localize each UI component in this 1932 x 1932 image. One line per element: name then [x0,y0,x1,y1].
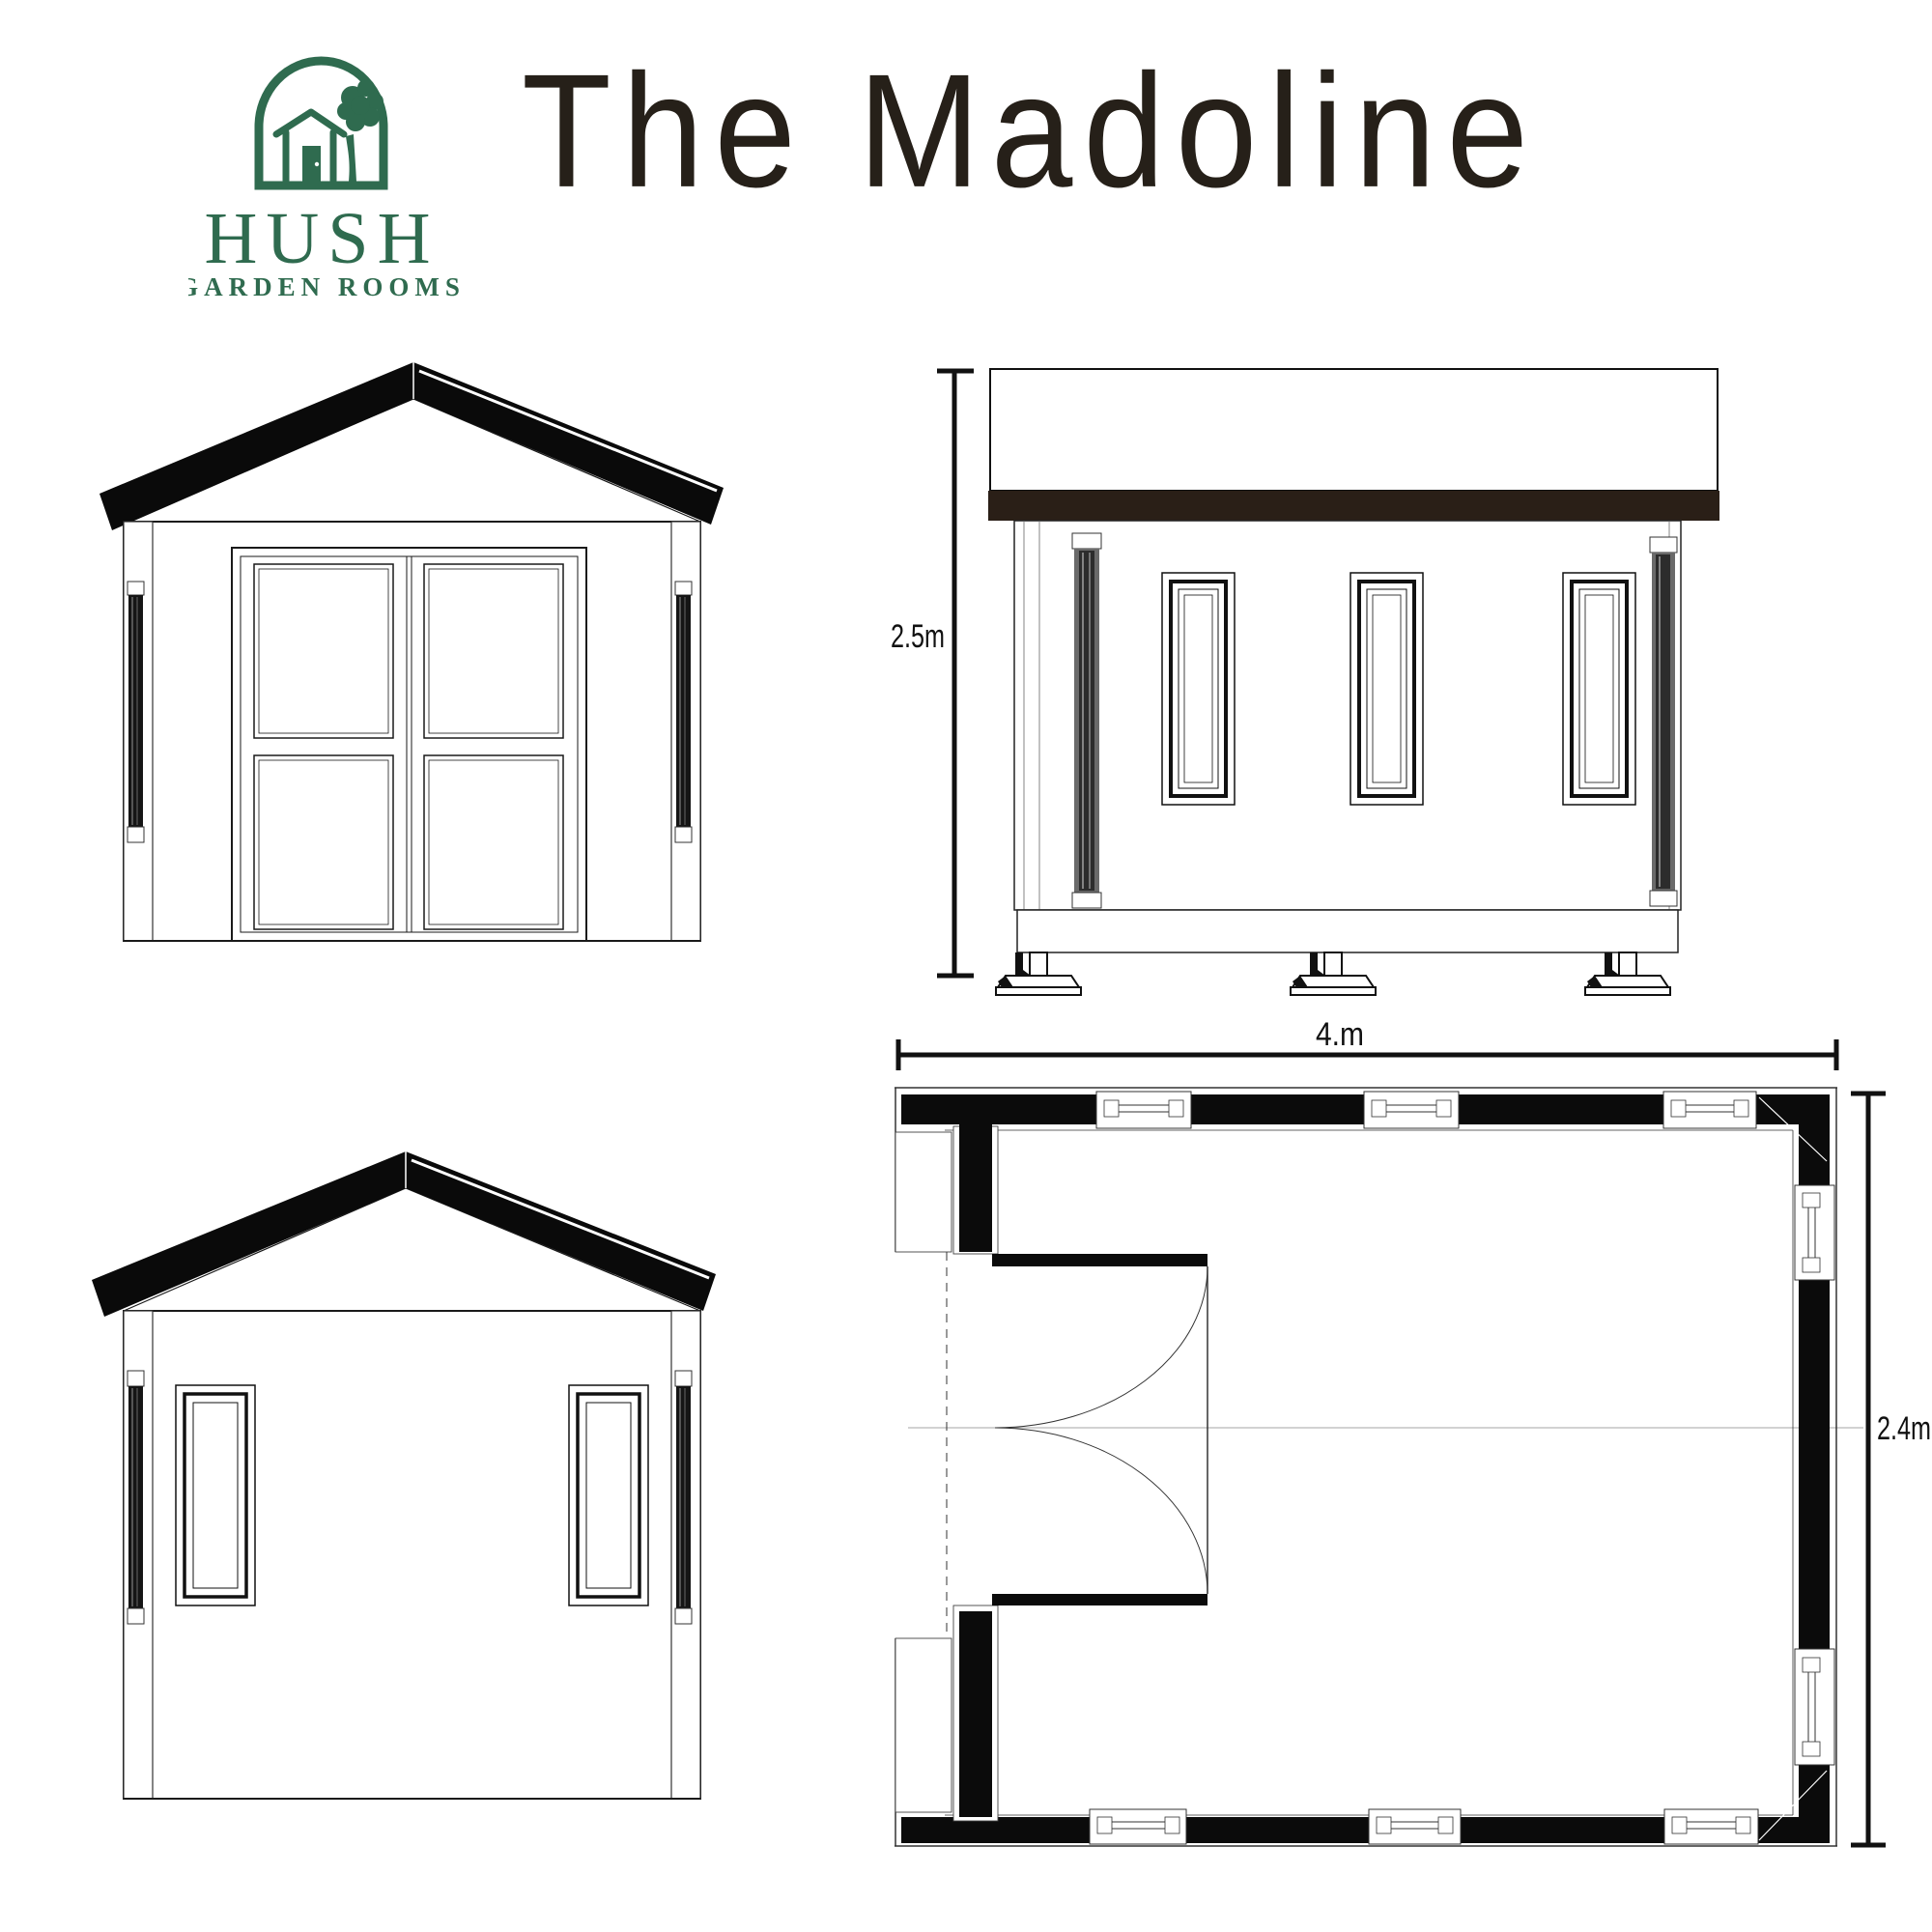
rear-window-right [569,1385,648,1605]
width-dimension [898,1039,1836,1070]
side-window-2 [1350,573,1423,805]
rear-elevation-drawing [68,1125,744,1831]
side-roof [990,369,1718,491]
side-window-3 [1563,573,1635,805]
plan-left-top-stub [895,1124,998,1254]
front-elevation-drawing [68,346,734,964]
plan-door-reveal-bottom [992,1594,1207,1605]
side-elevation-drawing: 2.5m [869,357,1748,1014]
depth-dimension [1851,1094,1886,1845]
side-left-corner-glazing [1072,533,1101,908]
logo-wordmark: HUSH [205,198,440,279]
depth-dimension-label: 2.4m [1877,1410,1931,1447]
plan-door-reveal-top [992,1254,1207,1266]
width-dimension-label: 4.m [1316,1016,1364,1053]
side-base-band [1017,910,1678,952]
side-right-corner-glazing [1650,537,1677,906]
logo-subtitle: GARDEN ROOMS [188,272,466,301]
floor-plan-drawing: 4.m 2.4m [884,1005,1932,1903]
front-left-corner-post [124,522,153,941]
side-fascia [988,491,1719,521]
rear-window-left [176,1385,255,1605]
height-dimension-label: 2.5m [891,618,945,655]
page-title: The Madoline [522,39,1681,272]
height-dimension [937,371,974,976]
plan-sheet: HUSH GARDEN ROOMS The Madoline [0,0,1932,1932]
side-feet [996,952,1670,995]
plan-left-bottom-stub [895,1605,998,1821]
plan-wall-faces [895,1088,1837,1846]
front-right-corner-post [671,522,700,941]
plan-right-wall [1799,1280,1830,1649]
side-window-1 [1162,573,1235,805]
rear-right-corner-post [671,1311,700,1799]
plan-french-doors [947,1252,1207,1638]
hush-garden-rooms-logo: HUSH GARDEN ROOMS [188,24,478,304]
front-double-doors [232,548,586,941]
rear-left-corner-post [124,1311,153,1799]
logo-door-handle [315,162,319,166]
